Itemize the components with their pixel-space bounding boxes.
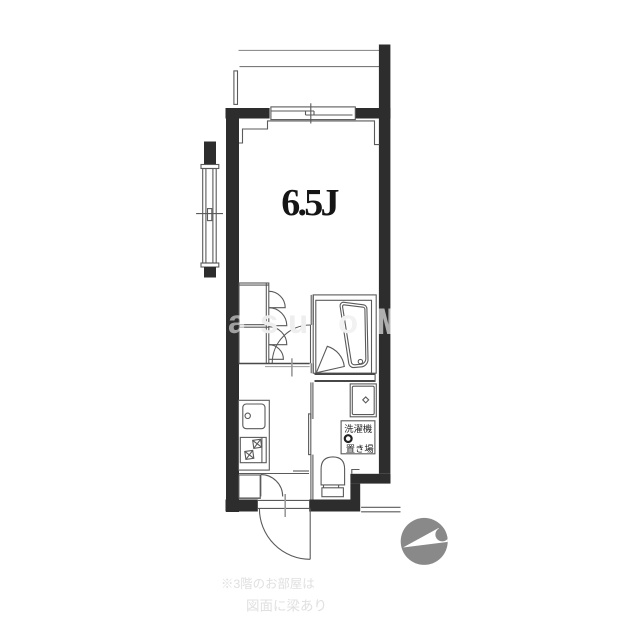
svg-text:6.5J: 6.5J xyxy=(281,182,338,224)
svg-text:※3階のお部屋は: ※3階のお部屋は xyxy=(221,576,315,591)
svg-text:図面に梁あり: 図面に梁あり xyxy=(246,599,327,614)
svg-text:置き場: 置き場 xyxy=(346,443,374,454)
svg-text:s: s xyxy=(260,303,278,340)
svg-text:洗濯機: 洗濯機 xyxy=(344,423,372,434)
svg-text:a: a xyxy=(228,303,247,340)
svg-text:o: o xyxy=(338,303,358,340)
svg-text:u: u xyxy=(288,303,308,340)
